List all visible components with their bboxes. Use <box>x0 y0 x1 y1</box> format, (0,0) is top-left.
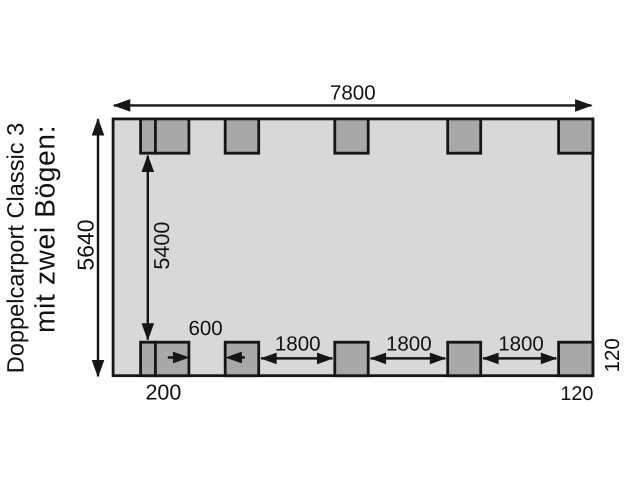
svg-text:mit zwei Bögen:: mit zwei Bögen: <box>30 125 61 333</box>
svg-text:5400: 5400 <box>149 222 174 270</box>
svg-text:1800: 1800 <box>275 332 321 355</box>
svg-text:120: 120 <box>560 383 593 405</box>
svg-text:120: 120 <box>601 338 624 372</box>
svg-text:5640: 5640 <box>72 219 98 270</box>
svg-text:1800: 1800 <box>386 332 432 355</box>
svg-text:200: 200 <box>145 381 181 405</box>
svg-text:1800: 1800 <box>498 332 544 355</box>
svg-text:Doppelcarport Classic 3: Doppelcarport Classic 3 <box>4 123 30 373</box>
svg-text:600: 600 <box>188 317 222 340</box>
svg-text:7800: 7800 <box>330 81 376 104</box>
